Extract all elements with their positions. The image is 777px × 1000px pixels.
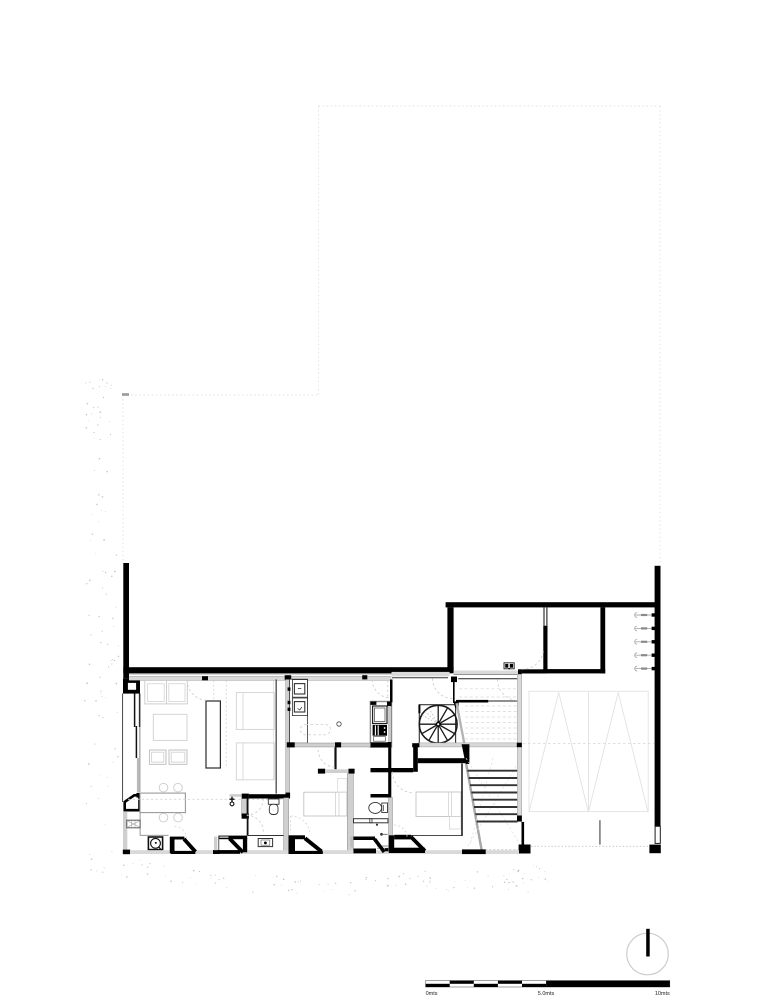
svg-text:5.0mts: 5.0mts bbox=[538, 991, 555, 997]
svg-text:10mts: 10mts bbox=[655, 991, 670, 997]
svg-text:0mts: 0mts bbox=[426, 991, 438, 997]
